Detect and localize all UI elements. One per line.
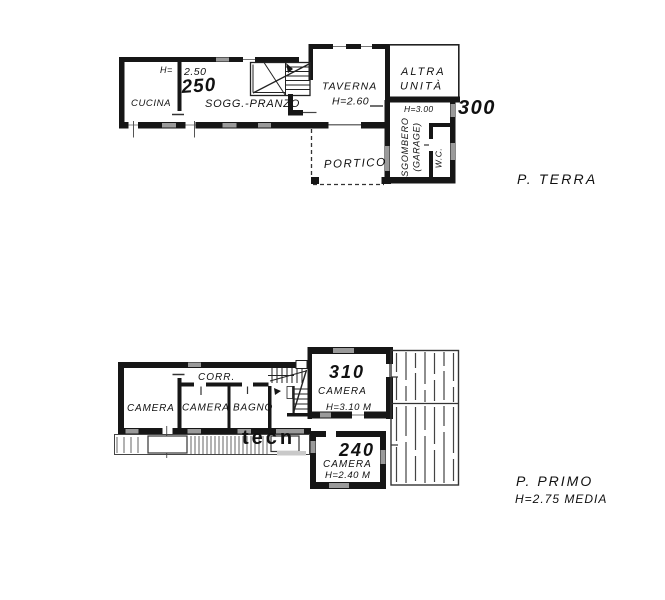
svg-text:CUCINA: CUCINA	[131, 98, 171, 109]
svg-text:ALTRA: ALTRA	[400, 66, 446, 78]
svg-text:H=3.10 M: H=3.10 M	[326, 402, 371, 413]
svg-text:CAMERA: CAMERA	[323, 459, 372, 470]
svg-text:W.C.: W.C.	[434, 148, 444, 169]
svg-text:PORTICO: PORTICO	[324, 157, 387, 171]
svg-text:tecn: tecn	[242, 427, 295, 449]
svg-text:CORR.: CORR.	[198, 372, 235, 383]
svg-text:SGOMBERO: SGOMBERO	[400, 117, 410, 176]
svg-text:310: 310	[329, 362, 365, 382]
svg-text:H=: H=	[160, 65, 173, 75]
svg-text:300: 300	[458, 97, 496, 119]
svg-text:H=2.40 M: H=2.40 M	[325, 470, 370, 481]
svg-text:P. PRIMO: P. PRIMO	[516, 473, 593, 489]
svg-text:BAGNO: BAGNO	[233, 403, 273, 414]
svg-text:CAMERA: CAMERA	[127, 403, 175, 414]
svg-text:240: 240	[338, 440, 375, 460]
svg-text:(GARAGE): (GARAGE)	[412, 122, 422, 171]
svg-text:H=3.00: H=3.00	[404, 104, 433, 114]
svg-text:UNITÀ: UNITÀ	[400, 80, 443, 93]
svg-text:CAMERA: CAMERA	[318, 386, 367, 397]
svg-text:P. TERRA: P. TERRA	[517, 171, 597, 187]
svg-text:CAMERA: CAMERA	[182, 403, 230, 414]
svg-text:H=2.60: H=2.60	[332, 96, 369, 108]
svg-text:H=2.75 MEDIA: H=2.75 MEDIA	[515, 492, 607, 506]
svg-text:TAVERNA: TAVERNA	[322, 81, 377, 93]
svg-text:250: 250	[180, 75, 217, 98]
svg-text:SOGG.-PRANZO: SOGG.-PRANZO	[205, 98, 300, 110]
